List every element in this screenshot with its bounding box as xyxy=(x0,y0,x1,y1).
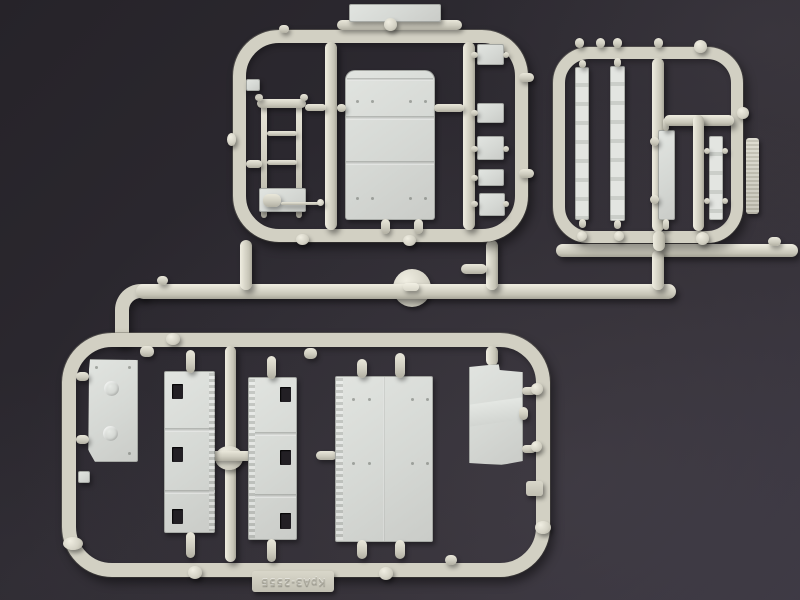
inner-runner xyxy=(693,115,704,231)
gate-stub xyxy=(614,58,621,67)
gate-ball xyxy=(384,18,397,31)
gate-stub xyxy=(304,348,317,359)
chassis-rail-part xyxy=(575,67,589,220)
rivet-dot xyxy=(371,100,374,103)
gate-stub xyxy=(486,346,498,366)
ejector-bump xyxy=(614,231,624,241)
gate-ball xyxy=(696,232,709,245)
cab-rear-panel xyxy=(88,359,138,462)
small-tab-part xyxy=(78,471,90,483)
rivet-dot xyxy=(426,398,429,401)
narrow-strip-part xyxy=(709,136,723,220)
hatch-plate xyxy=(479,193,505,216)
gate-stub xyxy=(434,104,464,112)
latch-opening xyxy=(172,384,183,399)
panel-rib xyxy=(347,78,433,81)
rivet-dot xyxy=(352,462,355,465)
panel-seam xyxy=(383,377,385,541)
gate-stub xyxy=(279,25,289,33)
rivet-dot xyxy=(371,197,374,200)
rivet-dot xyxy=(128,366,131,369)
gate-stub xyxy=(76,372,89,381)
gate-ball xyxy=(166,333,180,345)
gate-stub xyxy=(471,201,478,207)
secondary-runner xyxy=(556,244,798,257)
gate-stub xyxy=(519,407,528,420)
panel-rib xyxy=(165,490,214,494)
panel-rib xyxy=(346,161,434,165)
gate-stub xyxy=(704,148,710,154)
panel-rib xyxy=(165,428,214,432)
panel-boss xyxy=(103,426,118,441)
chassis-rail-part xyxy=(610,66,625,221)
rivet-dot xyxy=(368,462,371,465)
sprue-tag-side xyxy=(746,138,759,214)
small-tab-part xyxy=(246,79,260,91)
gate-ball xyxy=(694,40,707,53)
hatch-plate xyxy=(477,136,504,160)
rivet-dot xyxy=(95,366,98,369)
gate-stub xyxy=(445,555,457,565)
hatch-plate xyxy=(477,103,504,123)
rivet-dot xyxy=(411,398,414,401)
latch-opening xyxy=(280,450,291,465)
panel-boss xyxy=(104,381,119,396)
runner-disc-gate xyxy=(403,283,419,291)
gate-stub xyxy=(76,435,89,444)
gate-stub xyxy=(704,198,710,204)
ejector-bump xyxy=(63,537,83,550)
cross-beam-part xyxy=(658,130,675,220)
gate-stub xyxy=(519,73,534,82)
panel-corrugation xyxy=(336,378,343,540)
gate-stub xyxy=(722,198,728,204)
beam-hook xyxy=(650,137,659,146)
inner-runner xyxy=(325,42,337,230)
latch-opening xyxy=(280,387,291,402)
winch-drum xyxy=(263,194,281,207)
gate-stub xyxy=(768,237,781,246)
hatch-plate xyxy=(478,169,504,186)
gate-stub xyxy=(246,160,262,168)
gate-ball xyxy=(531,441,542,452)
ejector-bump xyxy=(403,235,416,246)
gate-stub xyxy=(357,540,367,559)
sprue-tag-bottom: КрАЗ-255Б xyxy=(252,571,334,592)
latch-opening xyxy=(280,513,291,529)
gate-stub xyxy=(381,219,390,234)
gate-stub xyxy=(414,219,423,234)
winch-crank-knob xyxy=(317,199,324,206)
gate-stub xyxy=(471,146,478,152)
ejector-bump xyxy=(296,234,309,245)
gate-stub xyxy=(503,201,509,207)
photo-stage: КрАЗ-255Б xyxy=(0,0,800,600)
gate-stub xyxy=(653,231,665,251)
ejector-bump xyxy=(188,566,202,579)
beam-hook xyxy=(650,195,659,204)
rivet-dot xyxy=(409,197,412,200)
rivet-dot xyxy=(424,197,427,200)
gate-stub xyxy=(503,146,509,152)
latch-opening xyxy=(172,447,183,462)
gate-stub xyxy=(186,532,195,558)
ladder-crossbar xyxy=(267,131,297,136)
gate-stub xyxy=(614,220,621,229)
gate-stub xyxy=(395,540,405,559)
rivet-dot xyxy=(128,452,131,455)
runner-vertical-left xyxy=(240,240,252,290)
sprue-tag-side-text xyxy=(746,138,759,214)
panel-rib xyxy=(255,494,296,498)
gate-stub xyxy=(471,52,478,58)
gate-stub xyxy=(654,38,663,48)
gate-stub xyxy=(471,110,478,116)
small-tab-part xyxy=(526,481,543,496)
gate-stub xyxy=(461,264,487,274)
ejector-bump xyxy=(379,567,393,580)
gate-stub xyxy=(663,219,669,230)
ladder-flange xyxy=(300,94,308,101)
ladder-crossbar xyxy=(267,160,297,165)
ejector-bump xyxy=(227,133,236,146)
panel-corrugation xyxy=(209,373,215,531)
gate-stub xyxy=(579,219,586,228)
panel-rib xyxy=(346,116,434,120)
gate-stub xyxy=(471,175,478,181)
ejector-bump xyxy=(577,231,587,241)
latch-opening xyxy=(172,509,183,524)
gate-stub xyxy=(357,359,367,378)
gate-ball xyxy=(737,107,749,119)
gate-stub xyxy=(503,52,509,58)
rivet-dot xyxy=(409,100,412,103)
gate-stub xyxy=(186,350,195,373)
gate-stub xyxy=(613,38,622,48)
gate-stub xyxy=(395,353,405,378)
sprue-tag-bottom-text: КрАЗ-255Б xyxy=(252,571,334,592)
rivet-dot xyxy=(411,462,414,465)
gate-stub xyxy=(157,276,168,285)
gate-stub xyxy=(316,451,337,460)
rivet-dot xyxy=(352,398,355,401)
gate-stub xyxy=(596,38,605,48)
hatch-plate xyxy=(477,44,504,65)
gate-stub xyxy=(575,38,584,48)
gate-stub xyxy=(579,60,586,68)
ladder-flange xyxy=(255,94,263,101)
runner-vertical-mid xyxy=(486,240,498,290)
gate-stub xyxy=(519,169,534,178)
gate-stub xyxy=(305,104,326,111)
panel-corrugation xyxy=(249,379,255,538)
ejector-bump xyxy=(535,521,551,534)
rivet-dot xyxy=(424,100,427,103)
winch-crank xyxy=(281,202,319,205)
rivet-dot xyxy=(356,100,359,103)
gate-stub xyxy=(140,346,154,357)
ladder-part-top-bar xyxy=(257,99,306,108)
gate-ball xyxy=(531,383,543,395)
gate-stub xyxy=(337,104,346,112)
rivet-dot xyxy=(368,398,371,401)
gate-stub xyxy=(267,356,276,379)
rivet-dot xyxy=(426,462,429,465)
runner-vertical-right xyxy=(652,250,664,290)
gate-stub xyxy=(267,539,276,562)
panel-rib xyxy=(255,432,296,436)
rivet-dot xyxy=(356,197,359,200)
gate-stub xyxy=(722,148,728,154)
